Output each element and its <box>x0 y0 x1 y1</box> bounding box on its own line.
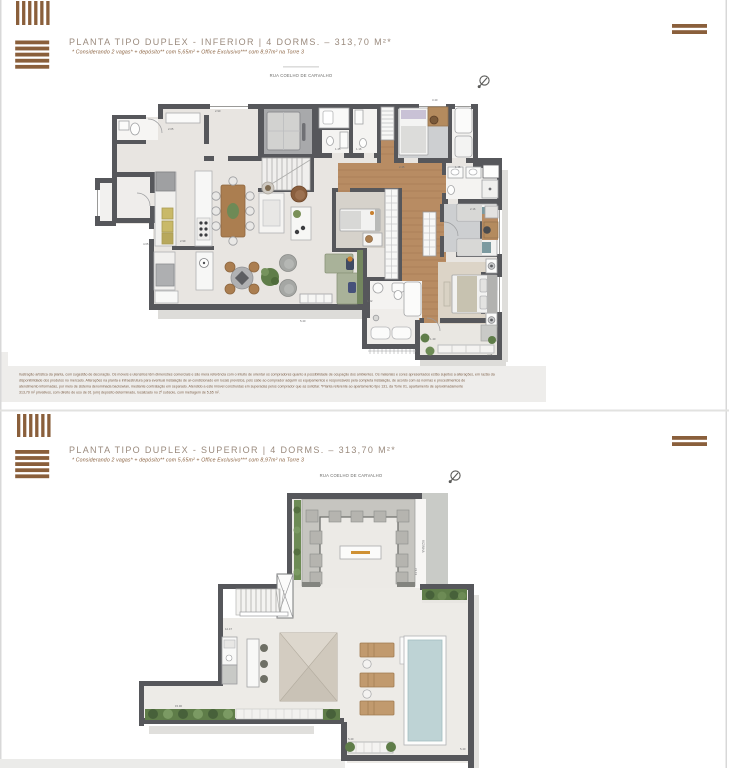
svg-text:VIZINHA: VIZINHA <box>421 540 425 553</box>
svg-text:2.05: 2.05 <box>168 127 174 131</box>
svg-text:PLANTA TIPO DUPLEX - INFERIOR: PLANTA TIPO DUPLEX - INFERIOR | 4 DORMS.… <box>69 37 392 47</box>
svg-text:2.99: 2.99 <box>180 239 186 243</box>
svg-text:3.40: 3.40 <box>432 98 438 102</box>
svg-text:2.16: 2.16 <box>470 207 476 211</box>
svg-text:1.40: 1.40 <box>430 337 436 341</box>
svg-text:15.90: 15.90 <box>175 704 182 708</box>
svg-text:RUA COELHO DE CARVALHO: RUA COELHO DE CARVALHO <box>320 473 383 478</box>
svg-text:atendimento informadas, por me: atendimento informadas, por meio de sist… <box>19 385 463 389</box>
svg-text:2.05: 2.05 <box>487 353 493 357</box>
svg-text:5.40: 5.40 <box>348 737 354 741</box>
svg-text:PLANTA TIPO DUPLEX - SUPERIOR: PLANTA TIPO DUPLEX - SUPERIOR | 4 DORMS.… <box>69 445 396 455</box>
svg-text:1.45: 1.45 <box>455 165 461 169</box>
svg-text:1.62: 1.62 <box>367 299 373 303</box>
svg-text:1.16: 1.16 <box>356 147 362 151</box>
svg-text:* Considerando 2 vagas* + depó: * Considerando 2 vagas* + depósito** com… <box>72 50 304 56</box>
svg-text:Ilustração artística da planta: Ilustração artística da planta, com suge… <box>19 373 495 377</box>
svg-text:12.47: 12.47 <box>225 627 232 631</box>
svg-text:disponibilidade dos produtos n: disponibilidade dos produtos no mercado.… <box>19 379 465 383</box>
svg-text:5.40: 5.40 <box>300 319 306 323</box>
svg-text:* Considerando 2 vagas* + depó: * Considerando 2 vagas* + depósito** com… <box>72 458 304 464</box>
svg-text:1.45: 1.45 <box>335 147 341 151</box>
svg-text:5.40: 5.40 <box>460 747 466 751</box>
svg-text:313,70 m² privativos, com dire: 313,70 m² privativos, com direito de uso… <box>19 391 220 395</box>
svg-text:2.45: 2.45 <box>399 165 405 169</box>
svg-text:4.65: 4.65 <box>143 242 149 246</box>
svg-text:2.90: 2.90 <box>215 109 221 113</box>
svg-text:74.74: 74.74 <box>414 568 418 575</box>
svg-text:RUA COELHO DE CARVALHO: RUA COELHO DE CARVALHO <box>270 73 333 78</box>
